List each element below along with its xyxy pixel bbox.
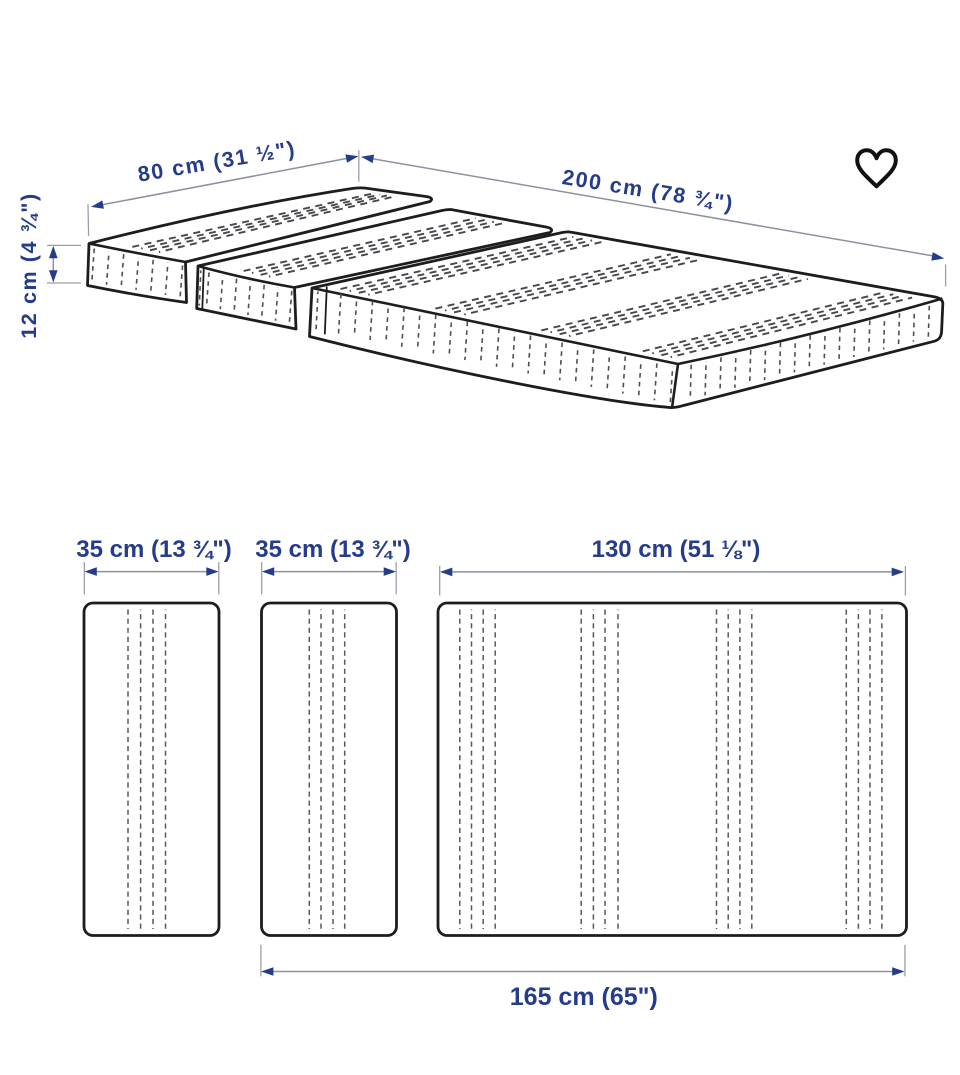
svg-text:12 cm (4 ¾"): 12 cm (4 ¾") <box>17 192 41 339</box>
svg-text:35 cm (13 ¾"): 35 cm (13 ¾") <box>76 536 231 563</box>
svg-text:130 cm (51 ⅛"): 130 cm (51 ⅛") <box>592 536 761 563</box>
svg-text:165 cm (65"): 165 cm (65") <box>510 983 658 1011</box>
svg-text:35 cm (13 ¾"): 35 cm (13 ¾") <box>255 536 410 563</box>
